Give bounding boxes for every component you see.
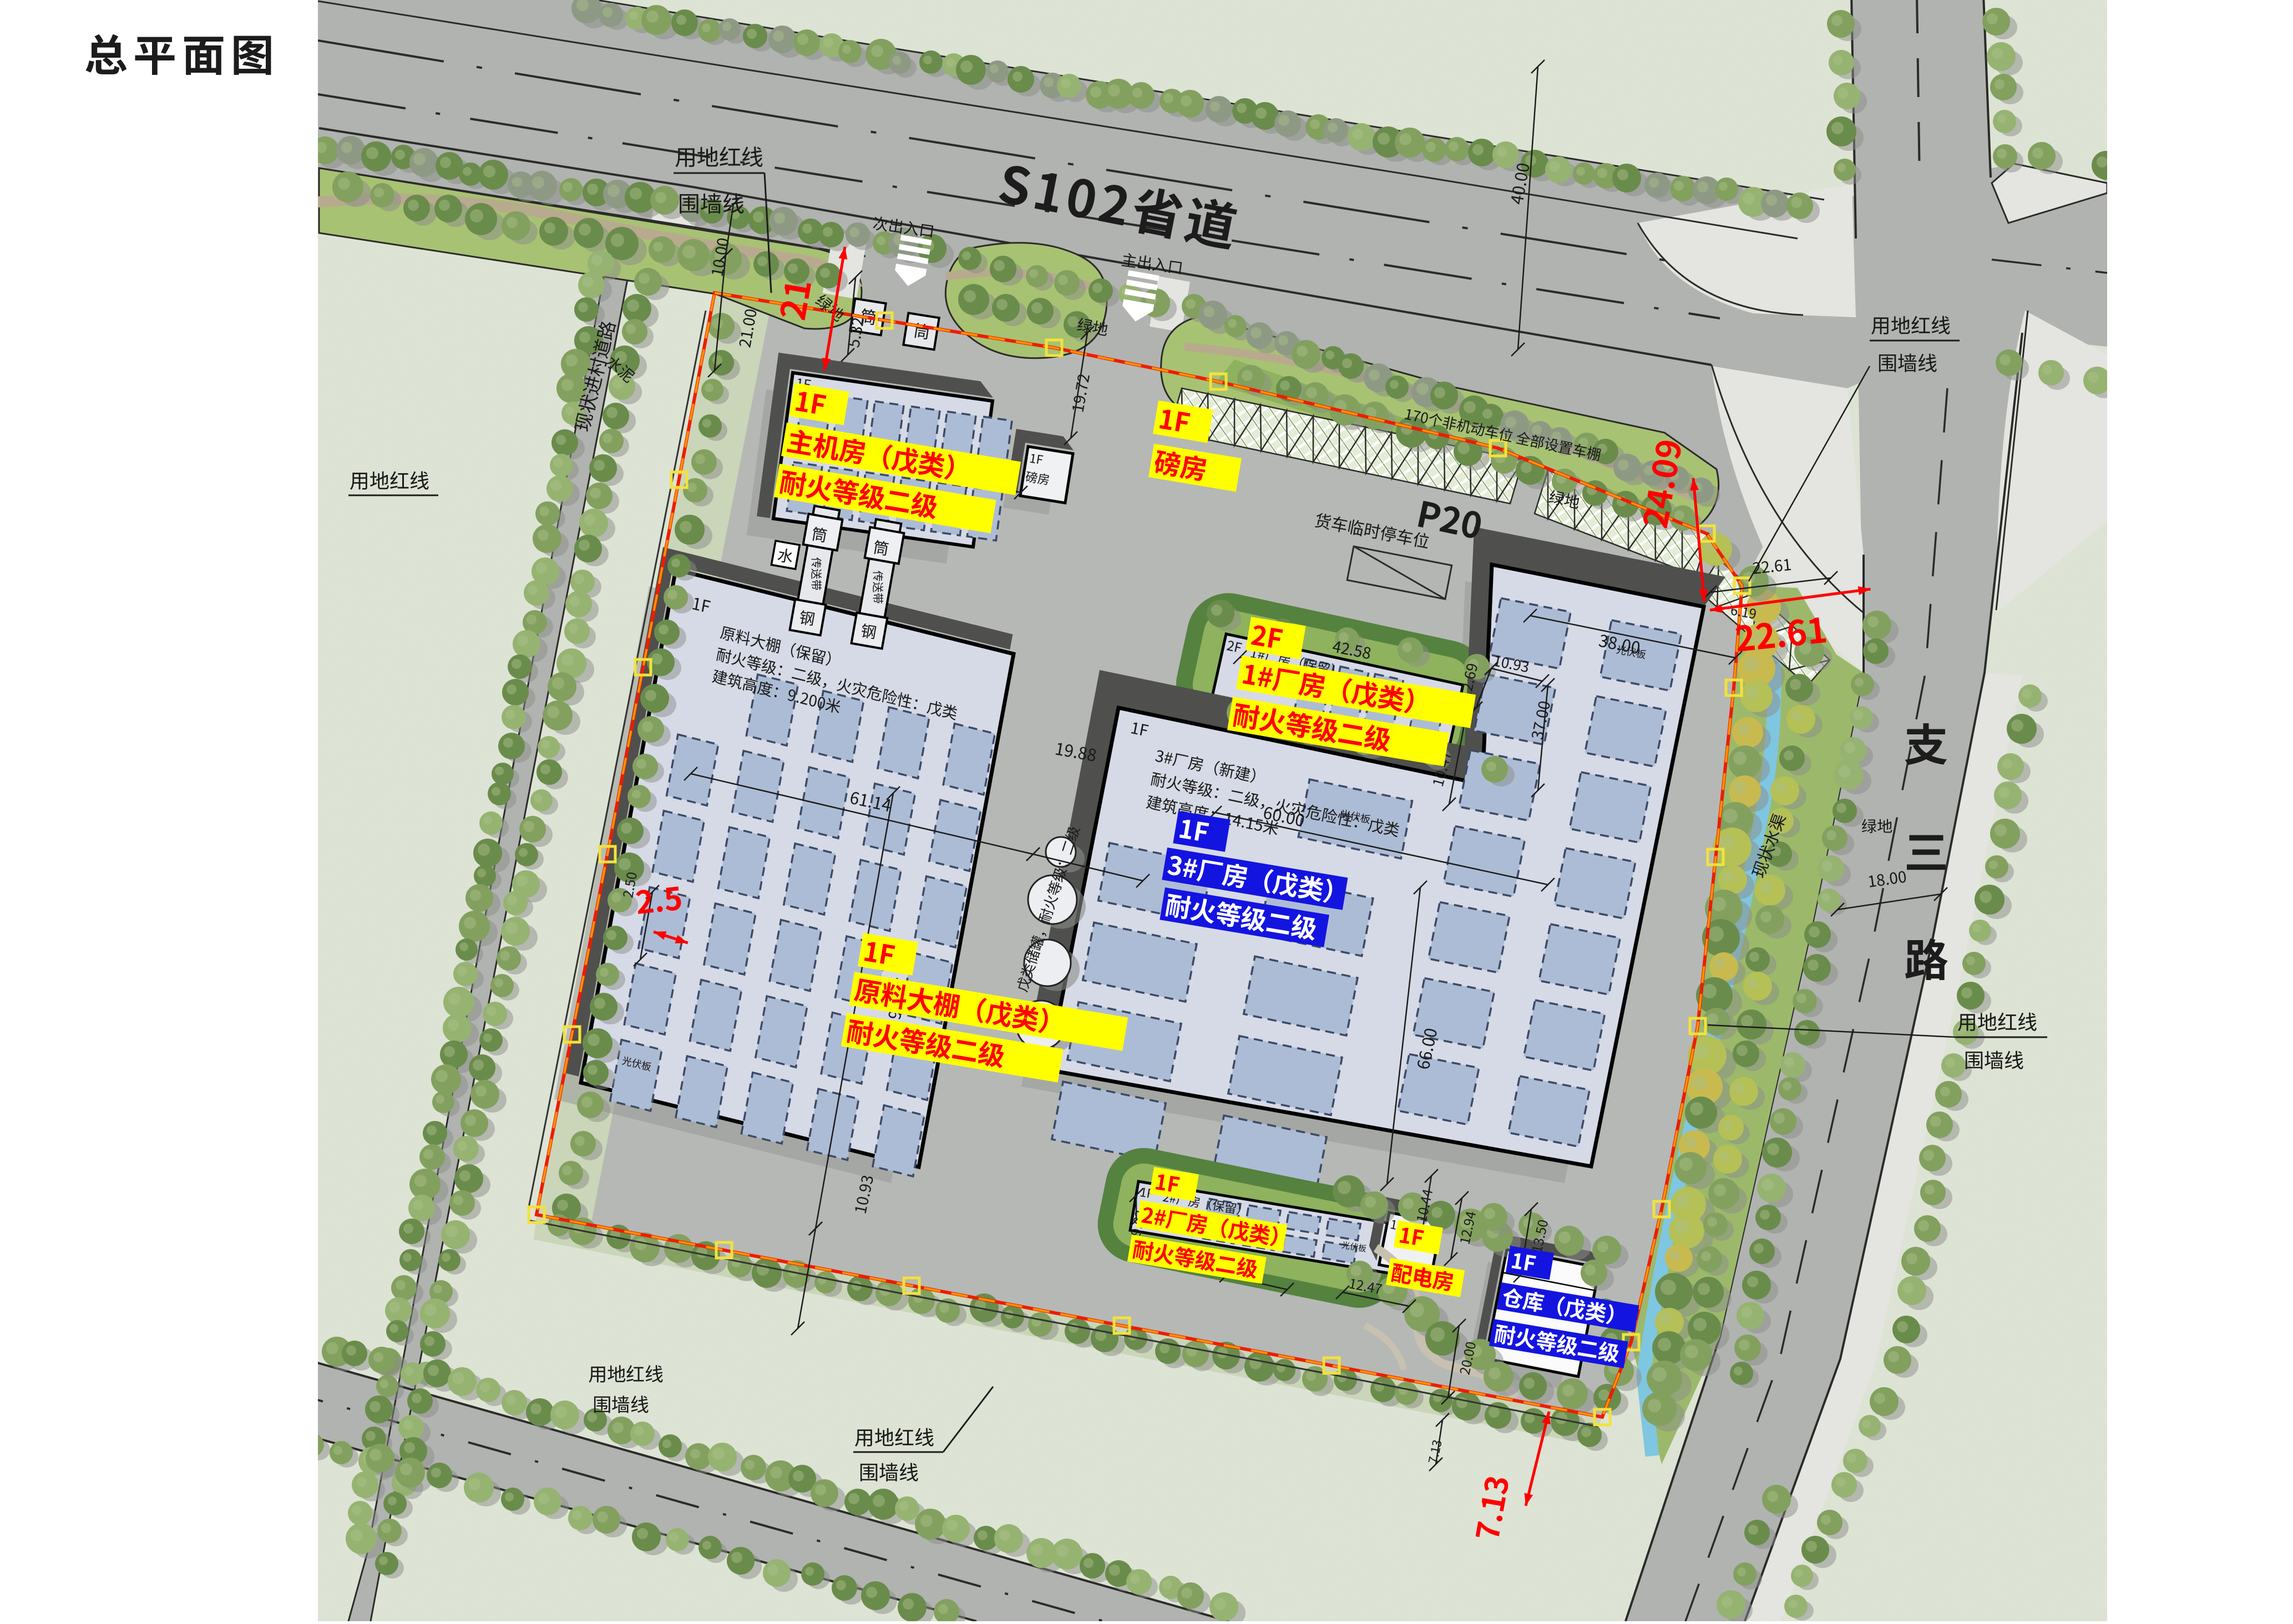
- svg-text:22.61: 22.61: [1732, 602, 1829, 662]
- svg-text:用地红线: 用地红线: [350, 465, 429, 494]
- svg-text:用地红线: 用地红线: [675, 140, 763, 172]
- svg-text:1F: 1F: [861, 930, 898, 973]
- svg-text:2.5: 2.5: [633, 874, 684, 923]
- svg-text:用地红线: 用地红线: [588, 1359, 664, 1387]
- svg-text:1F: 1F: [792, 379, 829, 423]
- svg-text:围墙线: 围墙线: [1964, 1045, 2024, 1074]
- svg-text:1F: 1F: [1176, 809, 1212, 850]
- svg-text:21: 21: [765, 275, 821, 323]
- svg-text:2F: 2F: [1249, 613, 1286, 657]
- svg-text:总平面图: 总平面图: [84, 22, 280, 84]
- svg-text:三: 三: [1904, 818, 1948, 882]
- svg-text:1F: 1F: [1397, 1218, 1426, 1252]
- svg-text:围墙线: 围墙线: [1877, 348, 1937, 377]
- svg-text:1F: 1F: [1153, 1165, 1182, 1199]
- svg-text:围墙线: 围墙线: [678, 186, 745, 219]
- svg-text:围墙线: 围墙线: [859, 1457, 919, 1486]
- svg-text:1F: 1F: [1156, 397, 1193, 440]
- svg-text:绿地: 绿地: [1861, 815, 1892, 837]
- svg-text:用地红线: 用地红线: [1957, 1007, 2037, 1036]
- svg-text:支: 支: [1904, 710, 1948, 774]
- svg-text:用地红线: 用地红线: [1871, 310, 1951, 339]
- svg-text:围墙线: 围墙线: [593, 1390, 649, 1417]
- svg-text:1F: 1F: [1509, 1244, 1538, 1278]
- svg-text:用地红线: 用地红线: [854, 1422, 934, 1451]
- svg-text:路: 路: [1904, 925, 1948, 989]
